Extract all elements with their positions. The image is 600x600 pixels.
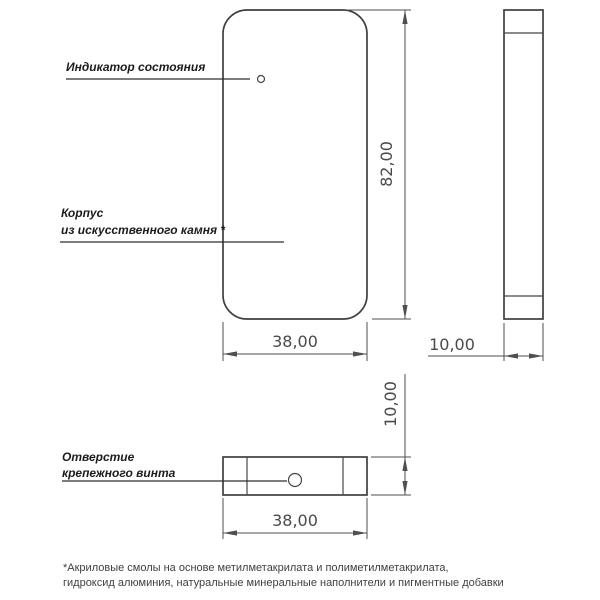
dim-text-side-thickness: 10,00: [412, 336, 492, 354]
front-view-outline: [223, 10, 367, 319]
dim-text-bottom-thickness: 10,00: [382, 364, 400, 444]
material-footnote-line1: *Акриловые смолы на основе метилметакрил…: [63, 561, 504, 576]
body-label-line2: из искусственного камня *: [61, 222, 225, 239]
screw-hole-label-line1: Отверстие: [62, 449, 175, 465]
arrow-up-icon: [402, 10, 407, 24]
arrow-right-icon: [353, 530, 367, 535]
dim-text-bottom-width: 38,00: [255, 512, 335, 530]
arrow-down-icon: [402, 305, 407, 319]
material-footnote: *Акриловые смолы на основе метилметакрил…: [63, 561, 504, 591]
arrow-left-icon: [223, 530, 237, 535]
front-view: [223, 10, 367, 319]
status-indicator-dot: [258, 76, 265, 83]
arrow-right-icon: [353, 351, 367, 356]
screw-hole-label-line2: крепежного винта: [62, 465, 175, 481]
material-footnote-line2: гидроксид алюминия, натуральные минераль…: [63, 576, 504, 591]
side-view-outline: [504, 10, 543, 319]
arrow-right-icon: [529, 353, 543, 358]
arrow-up-icon: [402, 457, 407, 471]
screw-hole-circle: [289, 474, 302, 487]
indicator-label: Индикатор состояния: [66, 59, 205, 76]
dim-text-front-height: 82,00: [378, 124, 396, 204]
body-label: Корпус из искусственного камня *: [61, 205, 225, 239]
side-view: [504, 10, 543, 319]
screw-hole-label: Отверстие крепежного винта: [62, 449, 175, 481]
drawing-canvas: [0, 0, 600, 600]
arrow-down-icon: [402, 481, 407, 495]
body-label-line1: Корпус: [61, 205, 225, 222]
dim-text-front-width: 38,00: [255, 333, 335, 351]
bottom-view-outline: [223, 457, 367, 495]
bottom-view: [223, 457, 367, 495]
arrow-left-icon: [223, 351, 237, 356]
arrow-left-icon: [504, 353, 518, 358]
technical-drawing-page: Индикатор состояния Корпус из искусствен…: [0, 0, 600, 600]
